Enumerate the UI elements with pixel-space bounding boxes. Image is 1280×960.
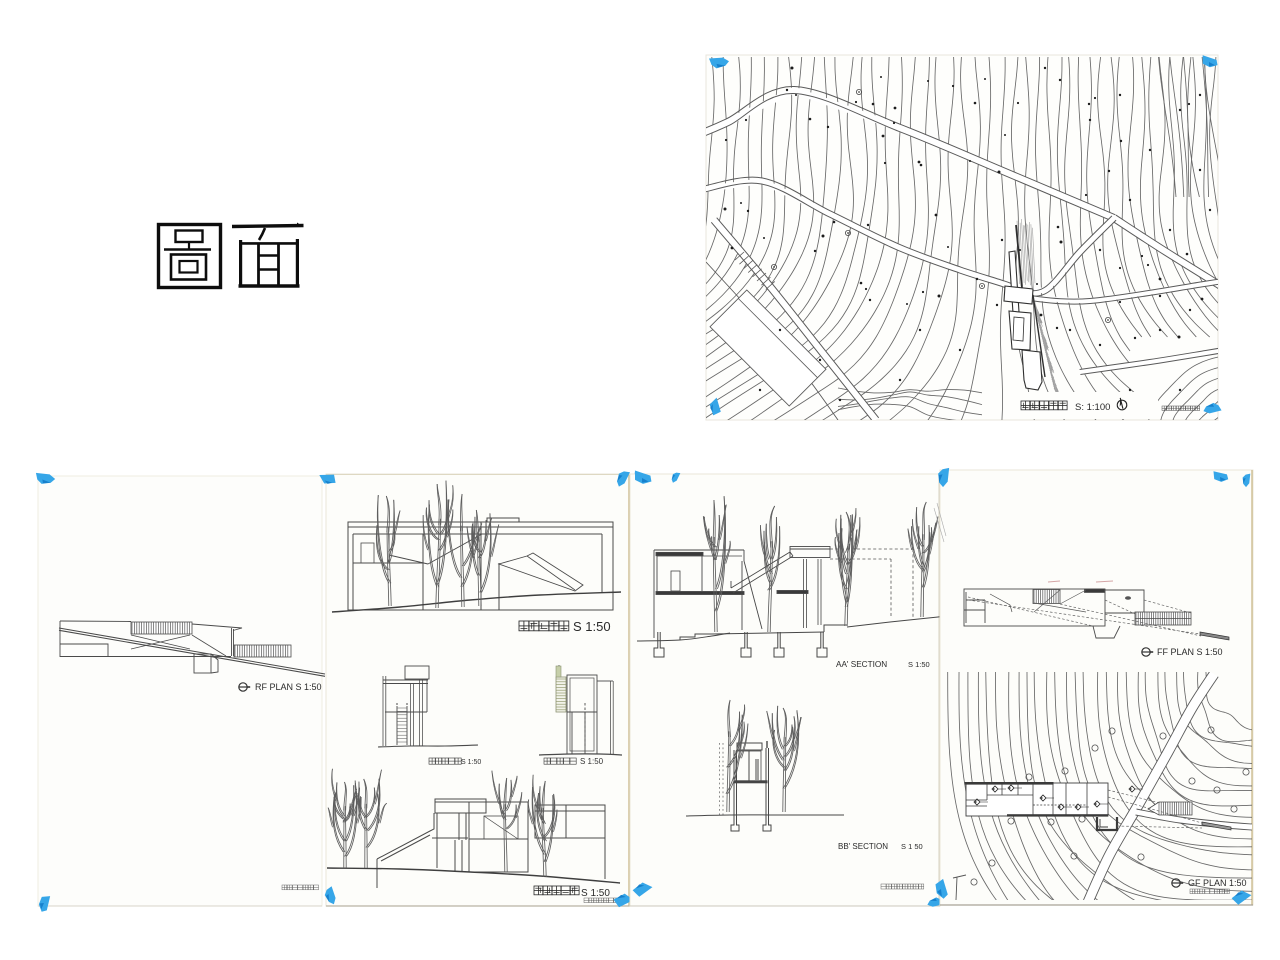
svg-text:AA' SECTION: AA' SECTION bbox=[836, 660, 887, 669]
svg-text:S 1:50: S 1:50 bbox=[581, 888, 610, 899]
svg-text:GF PLAN 1:50: GF PLAN 1:50 bbox=[1188, 878, 1247, 888]
svg-text:S 1:50: S 1:50 bbox=[461, 759, 481, 766]
svg-text:S 1:50: S 1:50 bbox=[573, 619, 611, 634]
svg-text:BB' SECTION: BB' SECTION bbox=[838, 842, 888, 851]
svg-text:S 1:50: S 1:50 bbox=[908, 660, 930, 669]
svg-text:S 1 50: S 1 50 bbox=[901, 842, 923, 851]
svg-text:RF PLAN S 1:50: RF PLAN S 1:50 bbox=[255, 682, 322, 692]
svg-text:S 1:50: S 1:50 bbox=[580, 757, 604, 766]
svg-text:S: 1:100: S: 1:100 bbox=[1075, 402, 1110, 413]
svg-text:FF PLAN S 1:50: FF PLAN S 1:50 bbox=[1157, 647, 1223, 657]
